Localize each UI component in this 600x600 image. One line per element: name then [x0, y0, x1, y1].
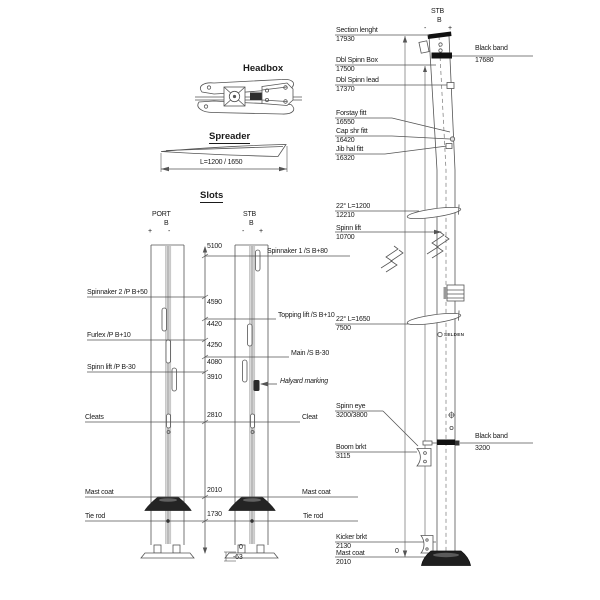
callout-jib-hal-fitt-value: 16320	[336, 155, 354, 163]
callout-spinn-eye-label: Spinn eye	[336, 403, 365, 411]
zero-datum-label: 0	[395, 548, 399, 556]
headbox-title: Headbox	[243, 64, 283, 74]
slot-label: Mast coat	[85, 489, 114, 497]
callout-dbl-spinn-lead-value: 17370	[336, 86, 354, 94]
callout-mast-coat-label: Mast coat	[336, 550, 365, 558]
callout-forstay-fitt-value: 16550	[336, 119, 354, 127]
port-column-header: PORT	[152, 211, 171, 219]
dim-value: 2010	[207, 487, 222, 495]
callout-forstay-fitt-label: Forstay fitt	[336, 110, 366, 118]
callout-kicker-brkt-label: Kicker brkt	[336, 534, 367, 542]
dim-value: 4080	[207, 359, 222, 367]
slots-title: Slots	[200, 191, 223, 203]
slot-label: Spinn lift /P B-30	[87, 364, 135, 372]
callout-spinn-lift-value: 10700	[336, 234, 354, 242]
slot-label: Cleats	[85, 414, 104, 422]
callout-mast-coat-value: 2010	[336, 559, 351, 567]
slot-label: Mast coat	[302, 489, 331, 497]
stb-column-sub: B	[249, 220, 253, 228]
port-minus-mark: -	[168, 228, 170, 236]
callout-spreader-lower-label: 22° L=1650	[336, 316, 370, 324]
dim-value: 4590	[207, 299, 222, 307]
dim-value: 4250	[207, 342, 222, 350]
port-column-sub: B	[164, 220, 168, 228]
callout-dbl-spinn-box-label: Dbl Spinn Box	[336, 57, 378, 65]
mast-drawing-sheet: Headbox Spreader L=1200 / 1650 Slots POR…	[0, 0, 600, 600]
callout-spinn-lift-label: Spinn lift	[336, 225, 361, 233]
callout-black-band-top-label: Black band	[475, 45, 508, 53]
callout-spinn-eye-value: 3200/3800	[336, 412, 367, 420]
mast-header: STB	[431, 8, 444, 16]
dim-value: 2810	[207, 412, 222, 420]
mast-minus-mark: -	[424, 25, 426, 33]
dim-value: 5100	[207, 243, 222, 251]
callout-section-length-label: Section lenght	[336, 27, 378, 35]
callout-spreader-upper-label: 22° L=1200	[336, 203, 370, 211]
halyard-marking-label: Halyard marking	[280, 378, 328, 386]
dim-value: 1730	[207, 511, 222, 519]
dim-value: 4420	[207, 321, 222, 329]
spreader-title: Spreader	[209, 132, 250, 144]
callout-section-length-value: 17930	[336, 36, 354, 44]
drawing-linework	[0, 0, 600, 600]
mast-plus-mark: +	[448, 25, 452, 33]
slot-label: Main /S B-30	[291, 350, 329, 358]
slot-label: Topping lift /S B+10	[278, 312, 335, 320]
slot-label: Furlex /P B+10	[87, 332, 131, 340]
dim-value: 0	[239, 544, 243, 552]
stb-minus-mark: -	[242, 228, 244, 236]
stb-plus-mark: +	[259, 228, 263, 236]
spreader-dim-label: L=1200 / 1650	[200, 159, 242, 167]
selden-brand-mark: SELDEN	[444, 332, 464, 337]
callout-jib-hal-fitt-label: Jib hal fitt	[336, 146, 363, 154]
callout-black-band-lower-label: Black band	[475, 433, 508, 441]
callout-black-band-top-value: 17680	[475, 57, 493, 65]
callout-dbl-spinn-lead-label: Dbl Spinn lead	[336, 77, 379, 85]
stb-column-header: STB	[243, 211, 256, 219]
mast-header-sub: B	[437, 17, 441, 25]
slot-label: Cleat	[302, 414, 317, 422]
callout-boom-brkt-label: Boom brkt	[336, 444, 366, 452]
dim-value: 3910	[207, 374, 222, 382]
callout-boom-brkt-value: 3115	[336, 453, 350, 461]
slot-label: Spinnaker 1 /S B+80	[267, 248, 328, 256]
callout-black-band-lower-value: 3200	[475, 445, 490, 453]
callout-dbl-spinn-box-value: 17500	[336, 66, 354, 74]
port-plus-mark: +	[148, 228, 152, 236]
dim-value: -63	[233, 554, 243, 562]
callout-spreader-lower-value: 7500	[336, 325, 351, 333]
slot-label: Spinnaker 2 /P B+50	[87, 289, 147, 297]
slot-label: Tie rod	[303, 513, 323, 521]
callout-spreader-upper-value: 12210	[336, 212, 354, 220]
callout-cap-shr-fitt-label: Cap shr fitt	[336, 128, 367, 136]
slot-label: Tie rod	[85, 513, 105, 521]
callout-cap-shr-fitt-value: 16420	[336, 137, 354, 145]
headbox-drawing	[195, 79, 302, 114]
